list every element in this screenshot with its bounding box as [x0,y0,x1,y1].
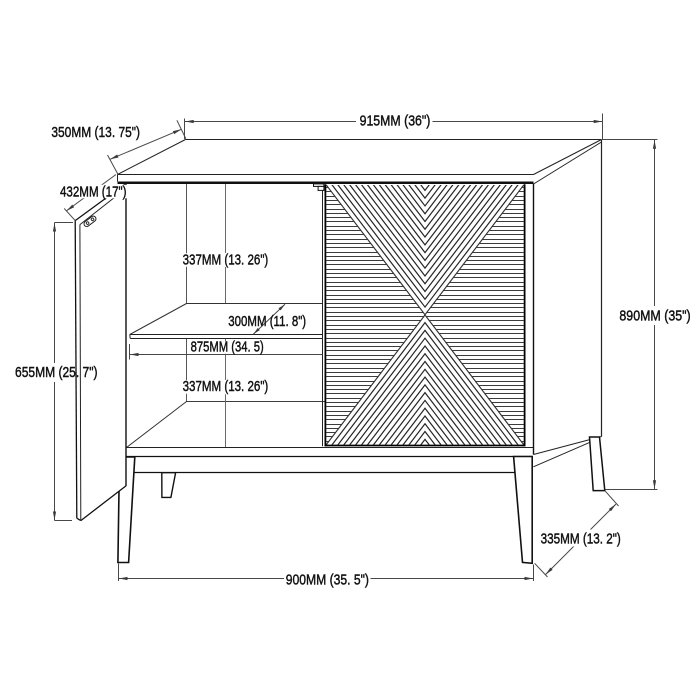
svg-text:432MM (17"): 432MM (17") [60,184,127,201]
svg-text:655MM (25. 7"): 655MM (25. 7") [15,364,98,381]
svg-text:335MM (13. 2"): 335MM (13. 2") [541,530,621,547]
svg-text:915MM (36"): 915MM (36") [360,113,431,130]
svg-text:890MM (35"): 890MM (35") [619,308,690,325]
svg-text:337MM (13. 26"): 337MM (13. 26") [183,251,269,268]
svg-text:350MM (13. 75"): 350MM (13. 75") [51,124,140,141]
svg-text:900MM (35. 5"): 900MM (35. 5") [286,571,369,588]
svg-text:875MM (34. 5): 875MM (34. 5) [191,338,264,355]
svg-text:337MM (13. 26"): 337MM (13. 26") [183,378,269,395]
svg-text:300MM (11. 8"): 300MM (11. 8") [228,313,306,330]
